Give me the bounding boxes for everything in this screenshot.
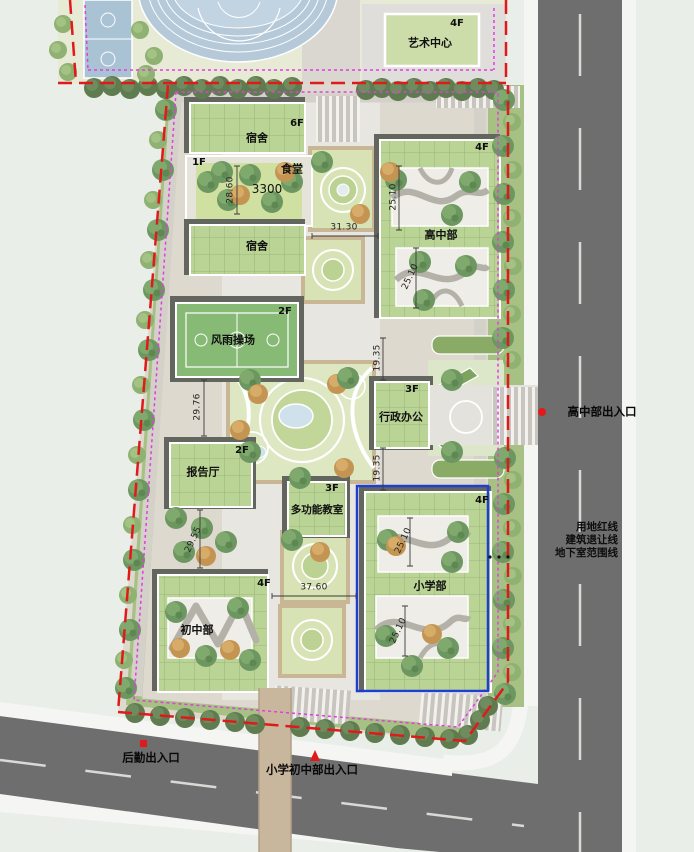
east-gate-paving: [430, 385, 538, 445]
admin-office-label: 行政办公: [379, 412, 423, 423]
high-school-floor-label: 4F: [475, 143, 489, 153]
lecture-hall-label: 报告厅: [187, 467, 220, 478]
east-entrance-label: 高中部出入口: [568, 406, 637, 418]
dormitory-1-building: [184, 97, 305, 153]
site-plan: 4F 艺术中心 6F 宿舍 1F 食堂 3300 28.60 31.30 宿舍 …: [0, 0, 694, 852]
dim-28-60: 28.60: [227, 176, 236, 203]
south-entrance-label: 小学初中部出入口: [266, 764, 358, 776]
legend-setback-line: 建筑退让线: [566, 535, 619, 546]
dim-37-60: 37.60: [300, 584, 327, 593]
primary-school-label: 小学部: [414, 581, 447, 592]
middle-school-label: 初中部: [181, 625, 214, 636]
east-entrance-dot: [538, 408, 546, 416]
admin-office-floor-label: 3F: [405, 385, 419, 395]
lecture-hall-floor-label: 2F: [235, 446, 249, 456]
site-plan-graphics: [0, 0, 694, 852]
art-center-label: 艺术中心: [408, 38, 452, 49]
middle-school-floor-label: 4F: [257, 579, 271, 589]
dormitory-2-building: [184, 219, 305, 275]
dim-25-10-hs-upper: 25.10: [390, 183, 399, 210]
east-road: [538, 0, 622, 852]
primary-school-floor-label: 4F: [475, 496, 489, 506]
dim-19-35-upper: 19.35: [374, 344, 383, 371]
logistics-entrance-label: 后勤出入口: [122, 752, 180, 764]
dim-19-35-lower: 19.35: [374, 454, 383, 481]
canteen-floor-label: 1F: [192, 158, 206, 168]
dormitory-2-label: 宿舍: [246, 241, 268, 252]
canteen-area-label: 3300: [252, 183, 283, 195]
dormitory-1-label: 宿舍: [246, 133, 268, 144]
art-center-floor-label: 4F: [450, 19, 464, 29]
legend-red-line: 用地红线: [576, 522, 618, 533]
high-school-building: [374, 134, 500, 318]
dim-29-76: 29.76: [194, 393, 203, 420]
sports-hall-label: 风雨操场: [211, 335, 255, 346]
dim-31-30: 31.30: [330, 224, 357, 233]
basketball-courts: [84, 0, 132, 78]
dormitory-1-floor-label: 6F: [290, 119, 304, 129]
canteen-label: 食堂: [281, 164, 303, 175]
high-school-label: 高中部: [425, 230, 458, 241]
logistics-entrance-dot: [140, 740, 147, 747]
multi-classroom-label: 多功能教室: [291, 505, 344, 516]
legend-basement-line: 地下室范围线: [555, 548, 618, 559]
multi-classroom-floor-label: 3F: [325, 484, 339, 494]
sports-hall-floor-label: 2F: [278, 307, 292, 317]
